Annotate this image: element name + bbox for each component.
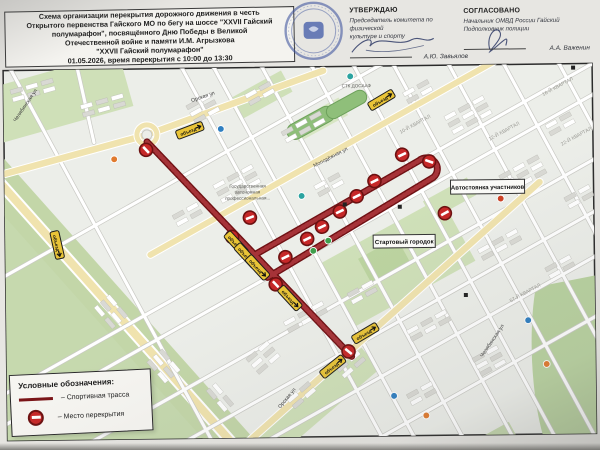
poi-icon [298,193,305,200]
start-area-label: Стартовый городок [375,238,434,246]
poi-icon [423,412,430,419]
poi-icon [310,247,317,254]
poi-icon [217,126,224,133]
poi-icon [525,317,532,324]
poi-icon [111,156,118,163]
approval-block: УТВЕРЖДАЮ Председатель комитета по физич… [349,6,468,62]
approval-role: Председатель комитета по физической куль… [349,16,467,42]
legend-closure-label: – Место перекрытия [58,410,125,420]
poi-icon [391,392,398,399]
approval-signer: А.Ю. Завьялов [424,53,468,61]
approval-heading: УТВЕРЖДАЮ [349,6,467,14]
poi-icon [347,73,354,80]
college-label: профессиональная... [225,195,270,201]
start-area-callout: Стартовый городок [373,234,435,248]
legend-route-label: – Спортивная трасса [61,391,130,401]
parking-label: Автостоянка участников [451,185,525,192]
closure-swatch-icon [27,409,44,426]
transit-stop-icon [398,205,402,209]
agreement-signer: А.А. Важенин [550,45,590,52]
college-label: автономная [235,189,261,194]
transit-stop-icon [571,66,575,70]
photo-edge [0,443,600,450]
poi-icon [543,361,550,368]
signature-line [464,49,526,51]
paper: Схема организации перекрытия дорожного д… [0,0,600,450]
title-box: Схема организации перекрытия дорожного д… [4,6,295,68]
agreement-role: Начальник ОМВД России Гайский Подполковн… [463,16,589,34]
scanned-page: Схема организации перекрытия дорожного д… [0,0,600,450]
legend-title: Условные обозначения: [18,376,142,391]
dosaaf-label: СТК ДОСААФ [342,83,372,88]
transit-stop-icon [343,202,347,206]
route-swatch-icon [19,397,53,402]
legend-box: Условные обозначения: – Спортивная трасс… [9,368,154,437]
poi-icon [497,195,504,202]
official-stamp-icon [281,0,346,62]
poi-icon [325,237,332,244]
agreement-block: СОГЛАСОВАНО Начальник ОМВД России Гайски… [463,6,590,54]
parking-callout: Автостоянка участников [450,179,524,194]
college-label: Государственная [229,183,266,188]
signature-line [350,56,412,58]
transit-stop-icon [464,293,468,297]
agreement-heading: СОГЛАСОВАНО [463,6,589,15]
